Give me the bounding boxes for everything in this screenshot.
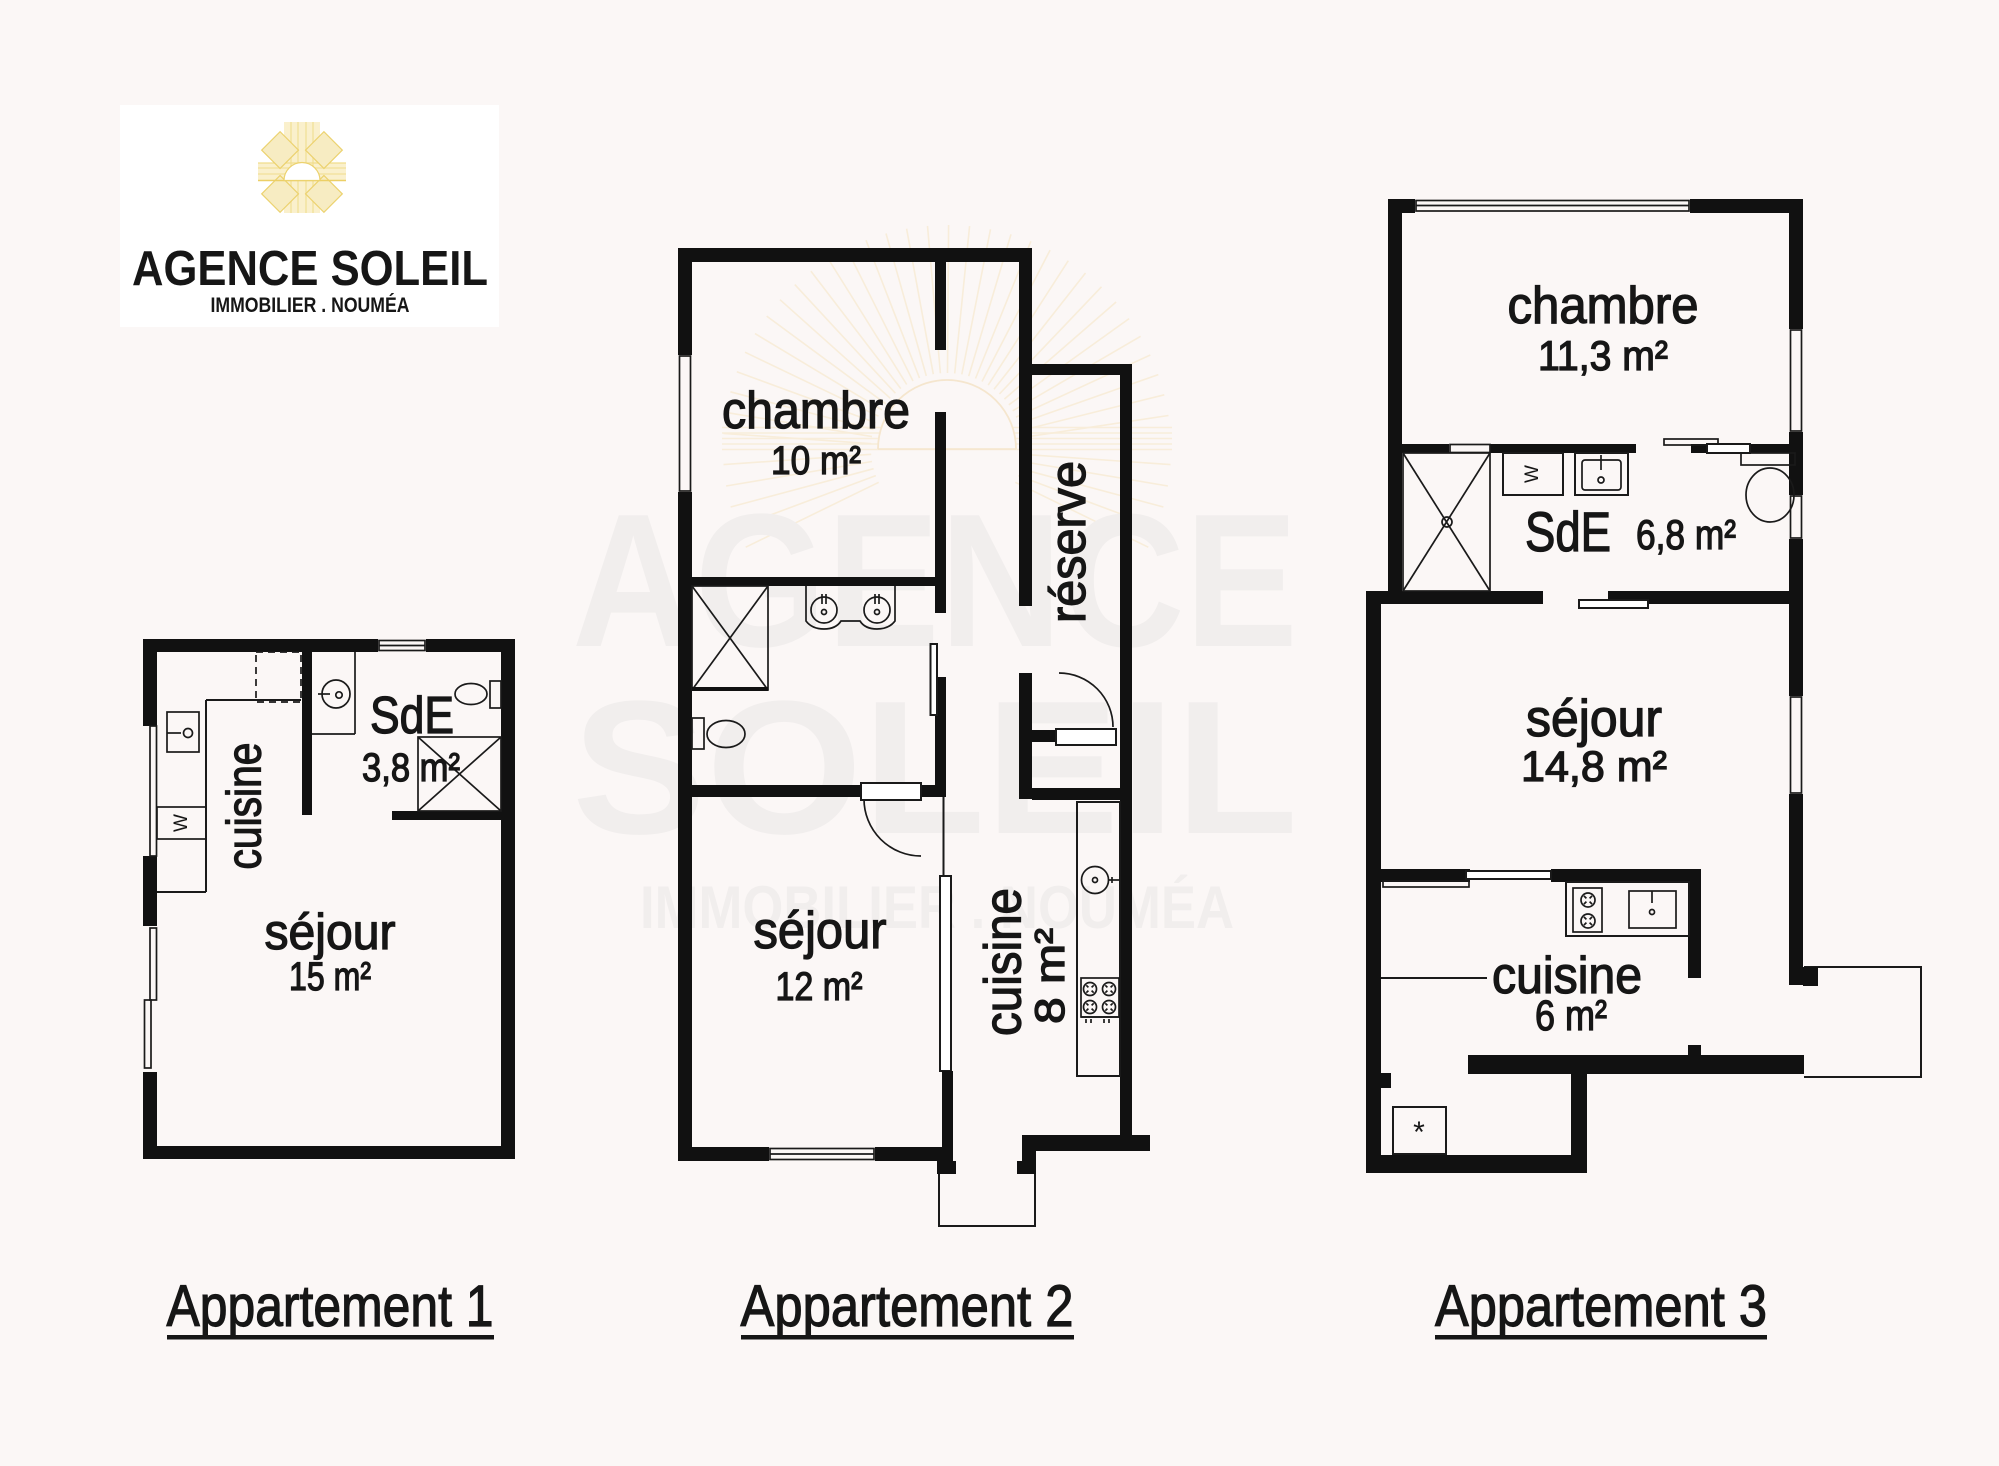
svg-text:3,8 m²: 3,8 m² [362,746,460,790]
svg-text:IMMOBILIER . NOUMÉA: IMMOBILIER . NOUMÉA [640,874,1234,941]
svg-text:réserve: réserve [1040,461,1096,623]
svg-text:IMMOBILIER . NOUMÉA: IMMOBILIER . NOUMÉA [211,294,410,317]
svg-text:6,8 m²: 6,8 m² [1636,511,1736,558]
svg-text:6 m²: 6 m² [1535,992,1607,1040]
svg-text:14,8 m²: 14,8 m² [1521,743,1667,791]
svg-text:10 m²: 10 m² [771,439,861,483]
svg-text:séjour: séjour [265,904,396,960]
svg-text:cuisine: cuisine [975,888,1033,1036]
svg-text:chambre: chambre [1508,277,1699,335]
svg-text:Appartement 2: Appartement 2 [741,1274,1074,1339]
svg-text:SdE: SdE [370,687,454,745]
svg-text:AGENCE SOLEIL: AGENCE SOLEIL [132,242,488,296]
svg-text:séjour: séjour [754,902,887,960]
svg-text:cuisine: cuisine [219,743,272,870]
svg-text:8 m²: 8 m² [1026,928,1073,1024]
svg-text:chambre: chambre [722,382,910,440]
svg-text:Appartement 3: Appartement 3 [1435,1274,1767,1339]
svg-text:W: W [1522,465,1543,483]
svg-text:W: W [171,814,192,832]
svg-text:11,3 m²: 11,3 m² [1538,332,1668,379]
svg-text:12 m²: 12 m² [776,965,863,1009]
svg-text:SdE: SdE [1525,500,1611,563]
svg-text:*: * [1413,1116,1425,1149]
svg-text:15 m²: 15 m² [289,955,371,999]
svg-text:Appartement 1: Appartement 1 [167,1274,494,1339]
svg-text:séjour: séjour [1526,690,1662,748]
